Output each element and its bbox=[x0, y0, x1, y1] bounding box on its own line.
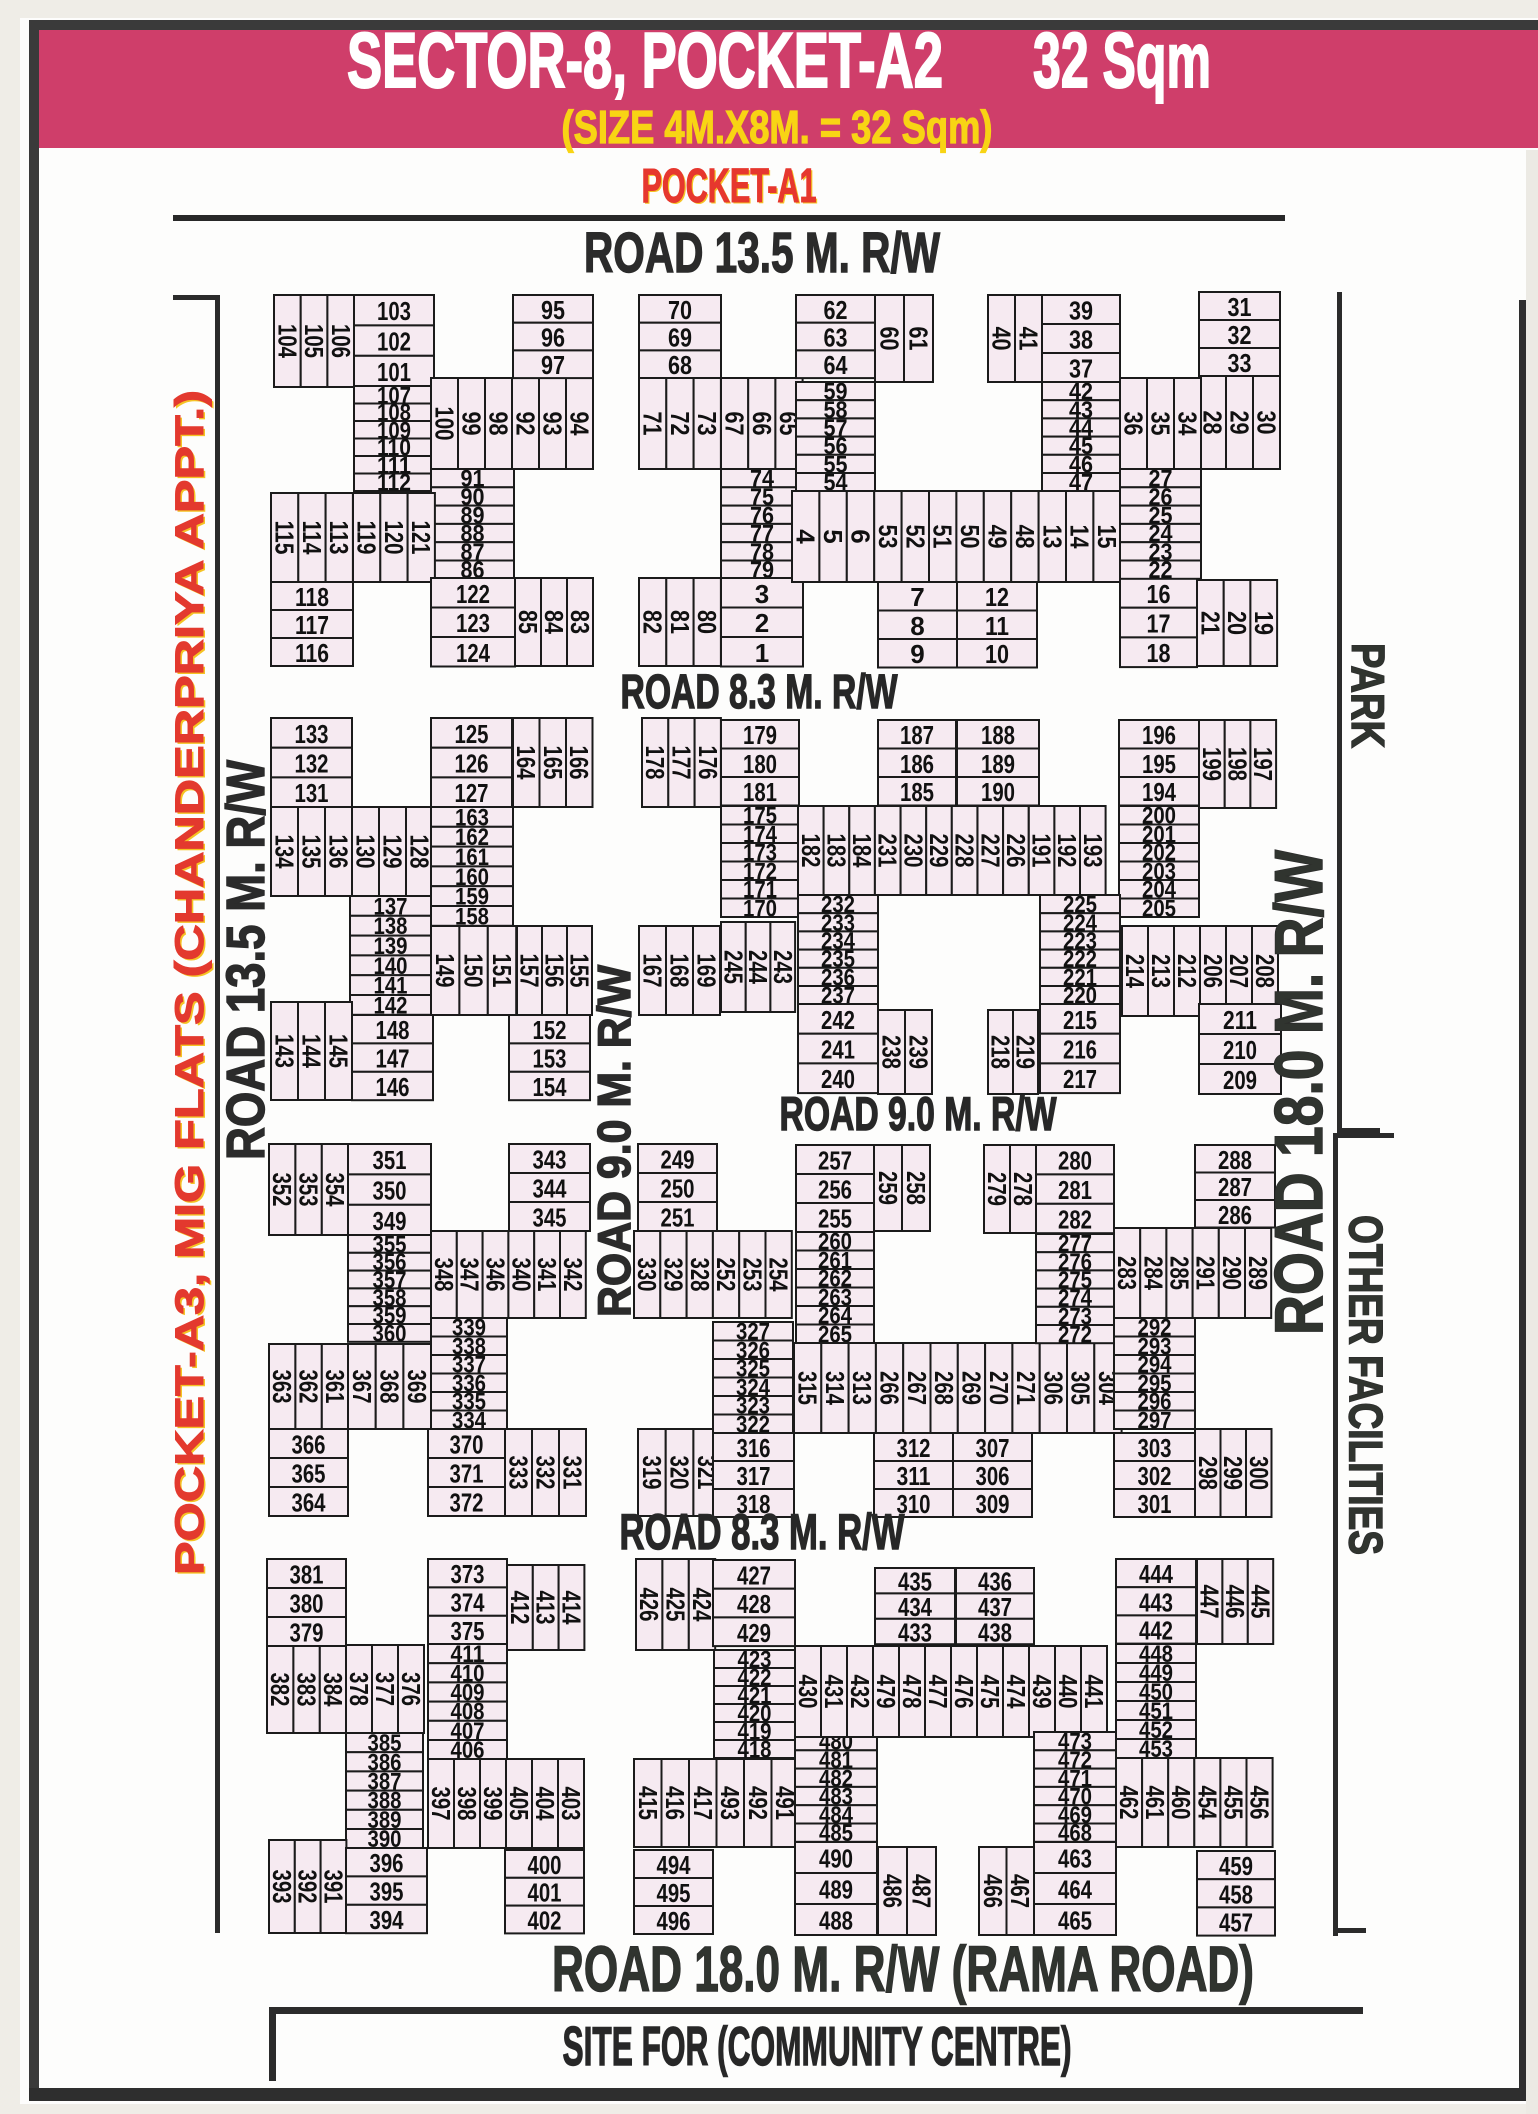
svg-text:8: 8 bbox=[910, 611, 924, 641]
svg-text:291: 291 bbox=[1191, 1256, 1221, 1290]
svg-text:80: 80 bbox=[692, 610, 722, 634]
svg-text:2: 2 bbox=[755, 608, 769, 638]
svg-text:116: 116 bbox=[295, 638, 329, 668]
svg-text:290: 290 bbox=[1217, 1256, 1247, 1290]
svg-text:297: 297 bbox=[1138, 1407, 1172, 1434]
svg-text:322: 322 bbox=[736, 1411, 770, 1438]
svg-text:121: 121 bbox=[406, 521, 436, 555]
svg-text:412: 412 bbox=[505, 1591, 535, 1625]
svg-text:ROAD 9.0 M. R/W: ROAD 9.0 M. R/W bbox=[780, 1087, 1057, 1140]
svg-text:84: 84 bbox=[539, 610, 569, 634]
svg-text:119: 119 bbox=[352, 521, 382, 555]
svg-text:341: 341 bbox=[532, 1258, 562, 1292]
svg-text:432: 432 bbox=[845, 1675, 875, 1709]
svg-text:288: 288 bbox=[1218, 1145, 1252, 1175]
svg-text:POCKET-A3, MIG FLATS (CHANDERP: POCKET-A3, MIG FLATS (CHANDERPRIYA APPT.… bbox=[168, 390, 212, 1575]
svg-text:257: 257 bbox=[818, 1146, 852, 1176]
svg-text:381: 381 bbox=[290, 1560, 324, 1590]
svg-text:4: 4 bbox=[791, 529, 821, 544]
svg-text:252: 252 bbox=[711, 1258, 741, 1292]
svg-text:PARK: PARK bbox=[1342, 643, 1394, 748]
svg-text:438: 438 bbox=[978, 1618, 1012, 1648]
svg-text:5: 5 bbox=[818, 529, 848, 543]
svg-text:125: 125 bbox=[455, 719, 489, 749]
svg-text:490: 490 bbox=[819, 1844, 853, 1874]
svg-text:279: 279 bbox=[982, 1172, 1012, 1206]
svg-text:219: 219 bbox=[1011, 1035, 1041, 1069]
svg-text:378: 378 bbox=[344, 1672, 374, 1706]
svg-text:166: 166 bbox=[564, 746, 594, 780]
svg-text:93: 93 bbox=[538, 412, 568, 436]
svg-text:486: 486 bbox=[878, 1874, 908, 1908]
svg-text:92: 92 bbox=[511, 412, 541, 436]
svg-text:271: 271 bbox=[1011, 1371, 1041, 1405]
svg-text:286: 286 bbox=[1218, 1200, 1252, 1230]
svg-text:216: 216 bbox=[1063, 1035, 1097, 1065]
svg-text:120: 120 bbox=[379, 521, 409, 555]
svg-text:402: 402 bbox=[528, 1906, 562, 1936]
svg-text:(SIZE 4M.X8M. = 32 Sqm): (SIZE 4M.X8M. = 32 Sqm) bbox=[562, 101, 993, 153]
svg-text:61: 61 bbox=[904, 327, 934, 351]
svg-text:186: 186 bbox=[900, 749, 934, 779]
svg-text:62: 62 bbox=[824, 295, 848, 325]
svg-text:35: 35 bbox=[1146, 412, 1176, 436]
svg-text:463: 463 bbox=[1058, 1844, 1092, 1874]
svg-text:395: 395 bbox=[370, 1877, 404, 1907]
svg-text:488: 488 bbox=[819, 1906, 853, 1936]
svg-text:267: 267 bbox=[902, 1371, 932, 1405]
svg-text:29: 29 bbox=[1225, 411, 1255, 435]
svg-text:342: 342 bbox=[558, 1258, 588, 1292]
svg-text:314: 314 bbox=[820, 1371, 850, 1405]
svg-text:346: 346 bbox=[481, 1258, 511, 1292]
svg-text:227: 227 bbox=[975, 834, 1005, 868]
svg-text:278: 278 bbox=[1008, 1172, 1038, 1206]
svg-text:239: 239 bbox=[904, 1035, 934, 1069]
svg-text:460: 460 bbox=[1166, 1786, 1196, 1820]
svg-text:440: 440 bbox=[1053, 1675, 1083, 1709]
svg-text:135: 135 bbox=[297, 835, 327, 869]
svg-text:353: 353 bbox=[294, 1173, 324, 1207]
svg-text:15: 15 bbox=[1092, 525, 1122, 549]
svg-text:12: 12 bbox=[985, 582, 1009, 612]
svg-text:10: 10 bbox=[985, 639, 1009, 669]
svg-text:439: 439 bbox=[1027, 1675, 1057, 1709]
svg-text:370: 370 bbox=[450, 1430, 484, 1460]
svg-text:377: 377 bbox=[370, 1672, 400, 1706]
svg-text:454: 454 bbox=[1192, 1786, 1222, 1820]
svg-text:307: 307 bbox=[976, 1433, 1010, 1463]
svg-text:196: 196 bbox=[1142, 720, 1176, 750]
svg-text:401: 401 bbox=[528, 1878, 562, 1908]
svg-text:96: 96 bbox=[541, 323, 565, 353]
svg-text:249: 249 bbox=[661, 1145, 695, 1175]
svg-text:379: 379 bbox=[290, 1618, 324, 1648]
svg-text:393: 393 bbox=[267, 1870, 297, 1904]
svg-text:153: 153 bbox=[533, 1044, 567, 1074]
svg-text:309: 309 bbox=[976, 1489, 1010, 1519]
svg-text:315: 315 bbox=[793, 1371, 823, 1405]
svg-text:188: 188 bbox=[981, 720, 1015, 750]
svg-text:392: 392 bbox=[293, 1870, 323, 1904]
svg-text:212: 212 bbox=[1172, 954, 1202, 988]
svg-text:287: 287 bbox=[1218, 1172, 1252, 1202]
svg-text:479: 479 bbox=[871, 1675, 901, 1709]
svg-text:400: 400 bbox=[528, 1850, 562, 1880]
svg-text:317: 317 bbox=[737, 1461, 771, 1491]
svg-text:104: 104 bbox=[272, 324, 302, 358]
svg-text:18: 18 bbox=[1147, 638, 1171, 668]
svg-text:281: 281 bbox=[1058, 1175, 1092, 1205]
svg-text:179: 179 bbox=[743, 720, 777, 750]
svg-text:ROAD 18.0 M. R/W (RAMA ROAD): ROAD 18.0 M. R/W (RAMA ROAD) bbox=[552, 1933, 1254, 2005]
svg-text:230: 230 bbox=[898, 834, 928, 868]
svg-text:345: 345 bbox=[533, 1203, 567, 1233]
svg-text:210: 210 bbox=[1223, 1035, 1257, 1065]
svg-text:461: 461 bbox=[1140, 1786, 1170, 1820]
svg-text:466: 466 bbox=[978, 1874, 1008, 1908]
svg-text:259: 259 bbox=[873, 1171, 903, 1205]
svg-text:251: 251 bbox=[661, 1203, 695, 1233]
svg-text:136: 136 bbox=[324, 835, 354, 869]
svg-text:320: 320 bbox=[665, 1456, 695, 1490]
svg-text:17: 17 bbox=[1147, 609, 1171, 639]
svg-text:32: 32 bbox=[1228, 320, 1252, 350]
svg-text:51: 51 bbox=[928, 525, 958, 549]
svg-text:250: 250 bbox=[661, 1174, 695, 1204]
svg-text:430: 430 bbox=[793, 1675, 823, 1709]
svg-text:ROAD 13.5 M. R/W: ROAD 13.5 M. R/W bbox=[216, 760, 276, 1160]
svg-text:114: 114 bbox=[297, 521, 327, 555]
svg-text:170: 170 bbox=[743, 895, 777, 922]
svg-text:382: 382 bbox=[265, 1673, 295, 1707]
svg-text:53: 53 bbox=[873, 525, 903, 549]
svg-text:285: 285 bbox=[1165, 1256, 1195, 1290]
svg-text:442: 442 bbox=[1139, 1616, 1173, 1646]
svg-text:40: 40 bbox=[987, 327, 1017, 351]
svg-text:363: 363 bbox=[267, 1370, 297, 1404]
svg-text:229: 229 bbox=[924, 834, 954, 868]
svg-text:214: 214 bbox=[1120, 954, 1150, 988]
svg-text:351: 351 bbox=[373, 1145, 407, 1175]
svg-text:165: 165 bbox=[538, 746, 568, 780]
svg-text:115: 115 bbox=[270, 521, 300, 555]
svg-text:417: 417 bbox=[688, 1786, 718, 1820]
svg-text:97: 97 bbox=[541, 350, 565, 380]
svg-text:151: 151 bbox=[487, 954, 517, 988]
svg-text:192: 192 bbox=[1052, 834, 1082, 868]
svg-text:41: 41 bbox=[1014, 327, 1044, 351]
svg-text:332: 332 bbox=[531, 1456, 561, 1490]
svg-text:73: 73 bbox=[692, 412, 722, 436]
svg-text:50: 50 bbox=[955, 525, 985, 549]
svg-text:331: 331 bbox=[558, 1456, 588, 1490]
svg-text:82: 82 bbox=[638, 610, 668, 634]
svg-text:459: 459 bbox=[1219, 1851, 1253, 1881]
svg-text:367: 367 bbox=[347, 1370, 377, 1404]
svg-text:133: 133 bbox=[295, 719, 329, 749]
svg-text:391: 391 bbox=[319, 1870, 349, 1904]
svg-text:123: 123 bbox=[456, 608, 490, 638]
svg-text:209: 209 bbox=[1223, 1065, 1257, 1095]
svg-text:70: 70 bbox=[668, 295, 692, 325]
svg-text:312: 312 bbox=[897, 1433, 931, 1463]
svg-text:185: 185 bbox=[900, 777, 934, 807]
svg-text:366: 366 bbox=[292, 1430, 326, 1460]
svg-text:352: 352 bbox=[267, 1173, 297, 1207]
svg-text:429: 429 bbox=[737, 1618, 771, 1648]
svg-text:ROAD 13.5 M. R/W: ROAD 13.5 M. R/W bbox=[584, 221, 940, 285]
svg-text:152: 152 bbox=[533, 1015, 567, 1045]
svg-text:31: 31 bbox=[1228, 292, 1252, 322]
svg-text:426: 426 bbox=[634, 1588, 664, 1622]
svg-text:397: 397 bbox=[426, 1787, 456, 1821]
svg-text:21: 21 bbox=[1195, 611, 1225, 635]
svg-text:105: 105 bbox=[299, 324, 329, 358]
svg-text:198: 198 bbox=[1223, 747, 1253, 781]
svg-text:3: 3 bbox=[755, 579, 769, 609]
svg-text:284: 284 bbox=[1138, 1256, 1168, 1290]
svg-text:126: 126 bbox=[455, 749, 489, 779]
svg-text:187: 187 bbox=[900, 720, 934, 750]
svg-text:176: 176 bbox=[693, 746, 723, 780]
svg-text:413: 413 bbox=[531, 1591, 561, 1625]
svg-text:496: 496 bbox=[657, 1906, 691, 1936]
svg-text:305: 305 bbox=[1066, 1371, 1096, 1405]
svg-text:303: 303 bbox=[1138, 1433, 1172, 1463]
svg-text:149: 149 bbox=[430, 954, 460, 988]
svg-text:145: 145 bbox=[324, 1034, 354, 1068]
svg-text:19: 19 bbox=[1249, 611, 1279, 635]
svg-text:48: 48 bbox=[1010, 525, 1040, 549]
svg-text:241: 241 bbox=[821, 1035, 855, 1065]
svg-text:63: 63 bbox=[824, 323, 848, 353]
svg-text:211: 211 bbox=[1223, 1005, 1257, 1035]
svg-text:11: 11 bbox=[985, 611, 1009, 641]
svg-text:177: 177 bbox=[666, 746, 696, 780]
svg-text:253: 253 bbox=[737, 1258, 767, 1292]
svg-text:226: 226 bbox=[1001, 834, 1031, 868]
svg-text:266: 266 bbox=[875, 1371, 905, 1405]
svg-text:299: 299 bbox=[1218, 1456, 1248, 1490]
svg-text:182: 182 bbox=[796, 834, 826, 868]
svg-text:348: 348 bbox=[429, 1258, 459, 1292]
svg-text:118: 118 bbox=[295, 582, 329, 612]
svg-text:69: 69 bbox=[668, 323, 692, 353]
svg-text:328: 328 bbox=[685, 1258, 715, 1292]
svg-text:256: 256 bbox=[818, 1175, 852, 1205]
svg-text:20: 20 bbox=[1222, 611, 1252, 635]
svg-text:199: 199 bbox=[1197, 747, 1227, 781]
svg-text:217: 217 bbox=[1063, 1064, 1097, 1094]
svg-text:487: 487 bbox=[907, 1874, 937, 1908]
svg-text:258: 258 bbox=[901, 1171, 931, 1205]
svg-text:167: 167 bbox=[638, 954, 668, 988]
svg-text:478: 478 bbox=[897, 1675, 927, 1709]
svg-text:14: 14 bbox=[1065, 525, 1095, 549]
svg-text:164: 164 bbox=[511, 746, 541, 780]
svg-text:254: 254 bbox=[764, 1258, 794, 1292]
svg-text:9: 9 bbox=[910, 639, 924, 669]
svg-text:SECTOR-8, POCKET-A2: SECTOR-8, POCKET-A2 bbox=[347, 16, 943, 104]
svg-text:ROAD 8.3 M. R/W: ROAD 8.3 M. R/W bbox=[621, 666, 898, 719]
svg-text:81: 81 bbox=[665, 610, 695, 634]
svg-text:272: 272 bbox=[1058, 1322, 1092, 1349]
svg-text:425: 425 bbox=[661, 1588, 691, 1622]
svg-text:431: 431 bbox=[819, 1675, 849, 1709]
svg-text:206: 206 bbox=[1198, 954, 1228, 988]
svg-text:414: 414 bbox=[557, 1591, 587, 1625]
svg-text:371: 371 bbox=[450, 1459, 484, 1489]
svg-text:228: 228 bbox=[950, 834, 980, 868]
svg-text:103: 103 bbox=[377, 296, 411, 326]
svg-text:POCKET-A1: POCKET-A1 bbox=[642, 160, 817, 213]
svg-text:52: 52 bbox=[900, 525, 930, 549]
svg-text:329: 329 bbox=[658, 1258, 688, 1292]
svg-text:129: 129 bbox=[378, 835, 408, 869]
svg-text:85: 85 bbox=[513, 610, 543, 634]
svg-text:99: 99 bbox=[457, 412, 487, 436]
svg-text:66: 66 bbox=[747, 412, 777, 436]
svg-text:416: 416 bbox=[660, 1786, 690, 1820]
svg-text:38: 38 bbox=[1069, 325, 1093, 355]
svg-text:49: 49 bbox=[983, 525, 1013, 549]
svg-text:398: 398 bbox=[452, 1787, 482, 1821]
svg-text:433: 433 bbox=[898, 1618, 932, 1648]
svg-text:124: 124 bbox=[456, 638, 490, 668]
svg-text:428: 428 bbox=[737, 1589, 771, 1619]
svg-text:283: 283 bbox=[1112, 1256, 1142, 1290]
svg-text:ROAD 8.3 M. R/W: ROAD 8.3 M. R/W bbox=[620, 1504, 906, 1560]
svg-text:404: 404 bbox=[530, 1787, 560, 1821]
svg-text:6: 6 bbox=[846, 529, 876, 543]
svg-text:373: 373 bbox=[451, 1559, 485, 1589]
svg-text:183: 183 bbox=[822, 834, 852, 868]
svg-text:197: 197 bbox=[1248, 747, 1278, 781]
svg-text:369: 369 bbox=[402, 1370, 432, 1404]
svg-text:474: 474 bbox=[1001, 1675, 1031, 1709]
svg-text:269: 269 bbox=[956, 1371, 986, 1405]
svg-text:106: 106 bbox=[326, 324, 356, 358]
svg-text:1: 1 bbox=[755, 638, 769, 668]
svg-text:195: 195 bbox=[1142, 749, 1176, 779]
svg-text:83: 83 bbox=[565, 610, 595, 634]
svg-text:475: 475 bbox=[975, 1675, 1005, 1709]
svg-text:383: 383 bbox=[292, 1673, 322, 1707]
svg-text:191: 191 bbox=[1027, 834, 1057, 868]
svg-text:444: 444 bbox=[1139, 1559, 1173, 1589]
svg-text:94: 94 bbox=[565, 412, 595, 436]
svg-text:365: 365 bbox=[292, 1459, 326, 1489]
svg-text:154: 154 bbox=[533, 1072, 567, 1102]
svg-text:ROAD 18.0 M. R/W: ROAD 18.0 M. R/W bbox=[1261, 849, 1337, 1335]
svg-text:306: 306 bbox=[976, 1461, 1010, 1491]
svg-text:193: 193 bbox=[1078, 834, 1108, 868]
svg-text:113: 113 bbox=[324, 521, 354, 555]
svg-text:180: 180 bbox=[743, 749, 777, 779]
svg-text:302: 302 bbox=[1138, 1461, 1172, 1491]
svg-text:169: 169 bbox=[692, 954, 722, 988]
svg-text:243: 243 bbox=[768, 950, 798, 984]
svg-text:238: 238 bbox=[877, 1035, 907, 1069]
svg-text:71: 71 bbox=[638, 412, 668, 436]
svg-text:13: 13 bbox=[1037, 525, 1067, 549]
svg-text:458: 458 bbox=[1219, 1879, 1253, 1909]
svg-text:415: 415 bbox=[633, 1786, 663, 1820]
svg-text:464: 464 bbox=[1058, 1875, 1092, 1905]
svg-text:148: 148 bbox=[376, 1015, 410, 1045]
svg-text:441: 441 bbox=[1079, 1675, 1109, 1709]
svg-text:242: 242 bbox=[821, 1005, 855, 1035]
svg-text:396: 396 bbox=[370, 1848, 404, 1878]
svg-text:95: 95 bbox=[541, 295, 565, 325]
svg-text:102: 102 bbox=[377, 327, 411, 357]
svg-text:122: 122 bbox=[456, 579, 490, 609]
svg-text:178: 178 bbox=[640, 746, 670, 780]
svg-text:427: 427 bbox=[737, 1560, 771, 1590]
svg-text:465: 465 bbox=[1058, 1906, 1092, 1936]
svg-text:350: 350 bbox=[373, 1176, 407, 1206]
svg-text:270: 270 bbox=[984, 1371, 1014, 1405]
svg-text:476: 476 bbox=[949, 1675, 979, 1709]
svg-text:60: 60 bbox=[875, 327, 905, 351]
svg-text:300: 300 bbox=[1244, 1456, 1274, 1490]
svg-text:213: 213 bbox=[1146, 954, 1176, 988]
svg-text:384: 384 bbox=[318, 1673, 348, 1707]
svg-text:380: 380 bbox=[290, 1589, 324, 1619]
svg-text:313: 313 bbox=[847, 1371, 877, 1405]
svg-text:372: 372 bbox=[450, 1488, 484, 1518]
svg-text:146: 146 bbox=[376, 1072, 410, 1102]
svg-text:7: 7 bbox=[910, 582, 924, 612]
svg-text:72: 72 bbox=[665, 412, 695, 436]
svg-text:117: 117 bbox=[295, 610, 329, 640]
svg-text:67: 67 bbox=[720, 412, 750, 436]
svg-text:489: 489 bbox=[819, 1875, 853, 1905]
svg-text:374: 374 bbox=[451, 1588, 485, 1618]
svg-text:215: 215 bbox=[1063, 1005, 1097, 1035]
svg-text:344: 344 bbox=[533, 1174, 567, 1204]
svg-text:189: 189 bbox=[981, 749, 1015, 779]
svg-text:347: 347 bbox=[455, 1258, 485, 1292]
svg-text:39: 39 bbox=[1069, 296, 1093, 326]
svg-text:30: 30 bbox=[1252, 411, 1282, 435]
svg-text:131: 131 bbox=[295, 778, 329, 808]
svg-text:34: 34 bbox=[1173, 412, 1203, 436]
svg-text:33: 33 bbox=[1228, 348, 1252, 378]
svg-text:456: 456 bbox=[1245, 1786, 1275, 1820]
svg-text:333: 333 bbox=[504, 1456, 534, 1490]
svg-text:168: 168 bbox=[665, 954, 695, 988]
svg-text:132: 132 bbox=[295, 749, 329, 779]
svg-text:ROAD 9.0 M. R/W: ROAD 9.0 M. R/W bbox=[588, 964, 640, 1317]
svg-text:150: 150 bbox=[459, 954, 489, 988]
svg-text:130: 130 bbox=[351, 835, 381, 869]
svg-text:403: 403 bbox=[556, 1787, 586, 1821]
svg-text:64: 64 bbox=[824, 350, 848, 380]
svg-text:493: 493 bbox=[715, 1786, 745, 1820]
svg-text:343: 343 bbox=[533, 1145, 567, 1175]
svg-text:394: 394 bbox=[370, 1905, 404, 1935]
svg-text:205: 205 bbox=[1142, 895, 1176, 922]
svg-text:467: 467 bbox=[1005, 1874, 1035, 1908]
svg-text:311: 311 bbox=[897, 1461, 931, 1491]
svg-text:477: 477 bbox=[923, 1675, 953, 1709]
svg-text:354: 354 bbox=[320, 1173, 350, 1207]
svg-text:494: 494 bbox=[657, 1850, 691, 1880]
svg-text:32 Sqm: 32 Sqm bbox=[1033, 16, 1211, 104]
svg-text:492: 492 bbox=[743, 1786, 773, 1820]
